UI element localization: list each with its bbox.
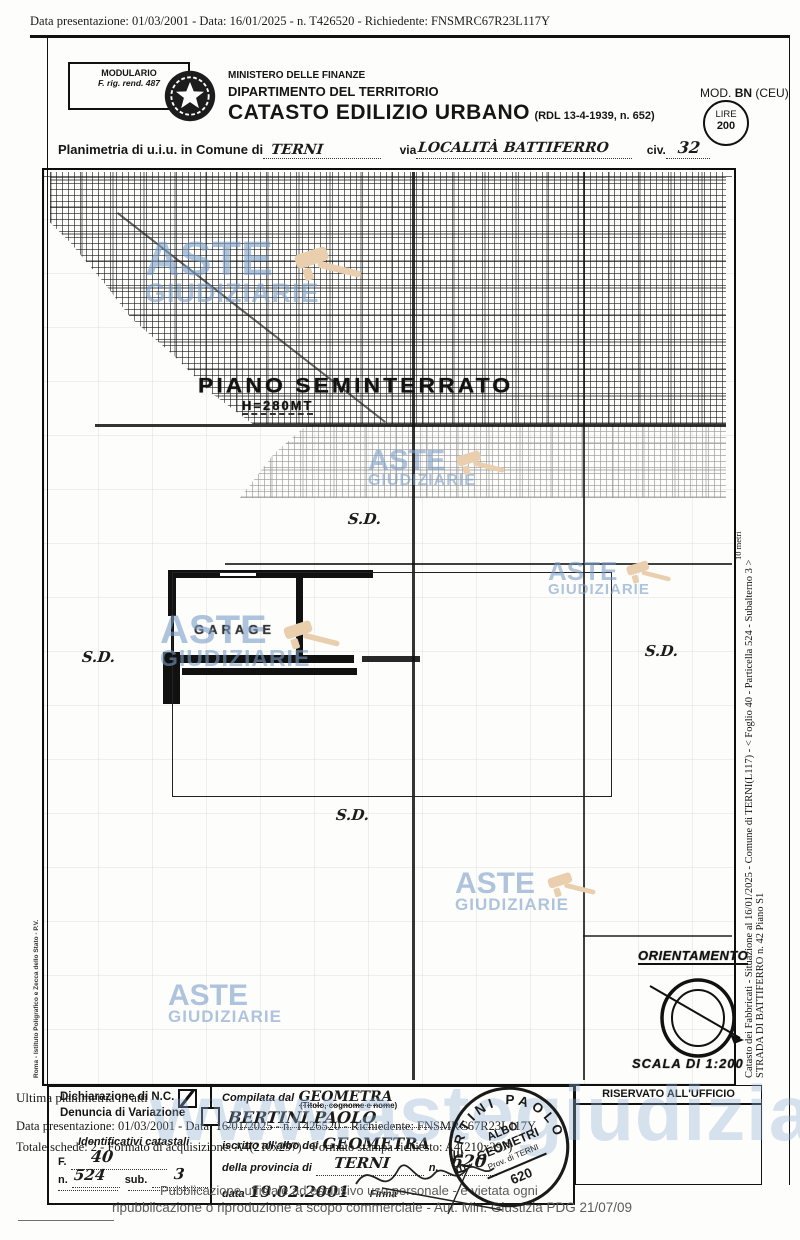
aste-watermark-6: ASTE GIUDIZIARIE: [168, 982, 282, 1024]
side-note-right-line1: Catasto dei Fabbricati - Situazione al 1…: [744, 556, 755, 1078]
document-title-row: CATASTO EDILIZIO URBANO (RDL 13-4-1939, …: [228, 101, 655, 125]
watermark-line2: GIUDIZIARIE: [168, 1009, 282, 1024]
overlay-ultima: Ultima planimetria in atti: [16, 1090, 148, 1106]
f-label: F.: [58, 1156, 67, 1168]
mod-bn-label: MOD. BN (CEU): [700, 86, 789, 100]
ministry-line2: DIPARTIMENTO DEL TERRITORIO: [228, 84, 439, 99]
f-value: 40: [90, 1147, 114, 1166]
document-title-suffix: (RDL 13-4-1939, n. 652): [534, 110, 654, 122]
prov-prefix: della provincia di: [222, 1162, 312, 1174]
n-value: 524: [73, 1166, 106, 1184]
plan-outline-rect: [172, 572, 612, 797]
floor-height-label: H=280MT: [242, 398, 313, 415]
via-label: via: [400, 143, 417, 157]
gavel-icon: [622, 560, 674, 594]
planimetria-line: Planimetria di u.i.u. in Comune diTERNI …: [58, 141, 782, 159]
civ-label: civ.: [647, 143, 666, 157]
top-rule: [30, 35, 790, 38]
sd-label-left: S.D.: [81, 648, 116, 666]
frame-right: [789, 38, 790, 1185]
scale-ruler-label: 10 metri: [733, 531, 743, 560]
gavel-icon: [543, 872, 599, 908]
plan-line-h1: [95, 424, 726, 427]
ministry-line1: MINISTERO DELLE FINANZE: [228, 70, 365, 81]
sub-value: 3: [173, 1165, 185, 1183]
n-label: n.: [58, 1174, 68, 1186]
sd-label-center: S.D.: [347, 510, 382, 528]
planimetria-prefix: Planimetria di u.i.u. in Comune di: [58, 142, 263, 157]
document-title: CATASTO EDILIZIO URBANO: [228, 101, 530, 124]
lire-value: 200: [705, 120, 747, 132]
bottom-left-mark: [18, 1220, 114, 1221]
lire-label: LIRE: [705, 109, 747, 120]
gavel-icon: [288, 246, 366, 296]
orientation-label: ORIENTAMENTO: [638, 948, 748, 965]
top-bar-text: Data presentazione: 01/03/2001 - Data: 1…: [30, 14, 550, 29]
sd-label-bottom: S.D.: [335, 806, 370, 824]
plan-line-h3: [583, 935, 732, 937]
sub-label: sub.: [125, 1174, 148, 1186]
civ-value: 32: [677, 138, 701, 157]
via-value: LOCALITÀ BATTIFERRO: [417, 140, 609, 156]
mod-bold: BN: [735, 86, 752, 100]
compass-icon: [648, 972, 748, 1064]
sd-label-right: S.D.: [644, 642, 679, 660]
lire-stamp: LIRE 200: [703, 100, 749, 146]
watermark-line1: ASTE: [168, 982, 282, 1009]
side-note-right: Catasto dei Fabbricati - Situazione al 1…: [744, 556, 766, 1078]
mod-suffix: (CEU): [755, 86, 788, 100]
floor-label: PIANO SEMINTERRATO: [198, 373, 513, 398]
gavel-icon: [278, 620, 344, 662]
side-note-left: Roma - Istituto Poligrafico e Zecca dell…: [33, 920, 40, 1078]
scanned-cadastral-document: Data presentazione: 01/03/2001 - Data: 1…: [0, 0, 800, 1240]
comune-value: TERNI: [270, 142, 324, 158]
state-emblem-icon: [162, 68, 218, 124]
side-note-right-line2: STRADA DI BATTIFERRO n. 42 Piano S1: [755, 556, 766, 1078]
gavel-icon: [452, 450, 508, 486]
mod-prefix: MOD.: [700, 86, 731, 100]
